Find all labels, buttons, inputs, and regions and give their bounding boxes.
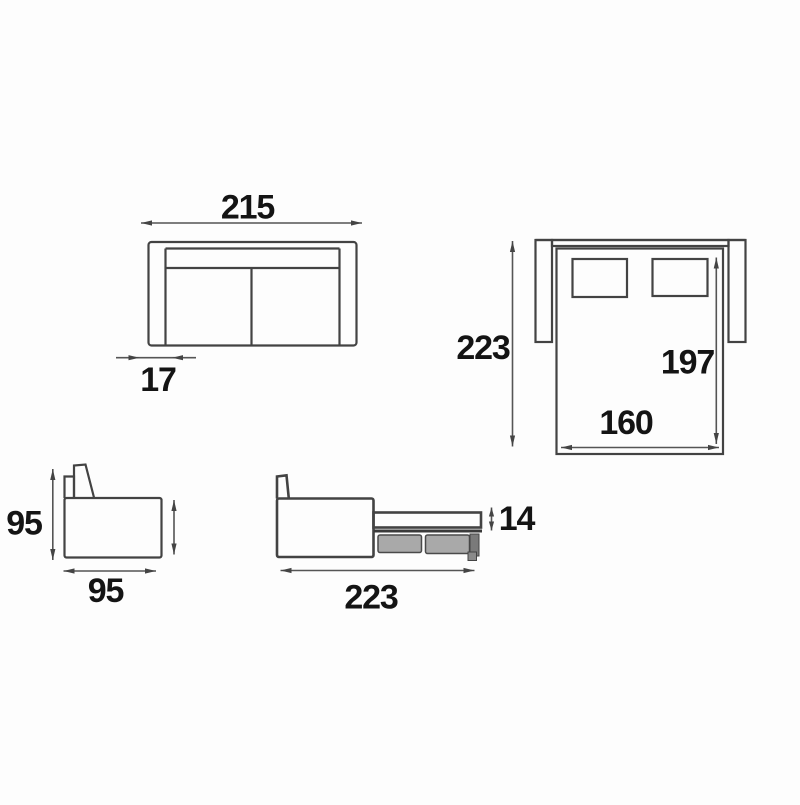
svg-text:160: 160 bbox=[599, 404, 652, 442]
svg-text:223: 223 bbox=[344, 579, 397, 617]
svg-text:197: 197 bbox=[661, 344, 714, 382]
svg-text:14: 14 bbox=[499, 500, 536, 538]
svg-text:223: 223 bbox=[456, 329, 509, 367]
svg-text:95: 95 bbox=[6, 505, 42, 543]
svg-text:95: 95 bbox=[88, 572, 124, 610]
svg-text:215: 215 bbox=[221, 189, 274, 227]
svg-text:17: 17 bbox=[140, 361, 176, 399]
